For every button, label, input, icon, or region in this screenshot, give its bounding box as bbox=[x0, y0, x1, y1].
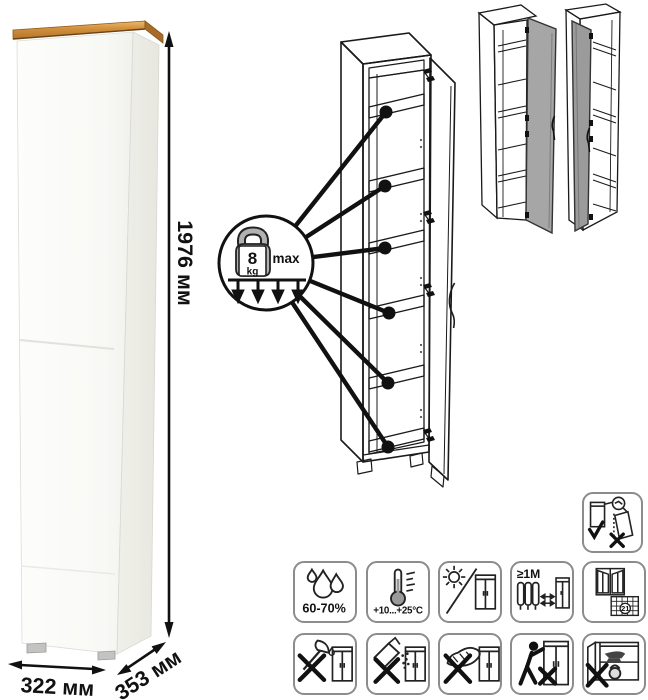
x-mark-icon bbox=[611, 534, 623, 546]
checkmark-icon bbox=[590, 522, 603, 537]
width-dimension: 322 мм bbox=[8, 661, 106, 700]
height-dimension: 1976 мм bbox=[165, 31, 198, 638]
gray-door bbox=[572, 21, 591, 231]
temperature-label: +10...+25°C bbox=[373, 606, 423, 617]
water-drops-icon bbox=[308, 570, 343, 598]
x-mark-icon bbox=[588, 665, 607, 686]
pictogram-sunlight bbox=[438, 561, 502, 623]
product-photo bbox=[13, 21, 163, 660]
carcass-top bbox=[341, 33, 431, 64]
cabinet-foot bbox=[98, 651, 115, 660]
wardrobe-icon bbox=[556, 578, 569, 608]
pictogram-heater-distance: ≥1М bbox=[510, 561, 574, 623]
pictogram-no-abrasive-sponge bbox=[438, 633, 502, 695]
humidity-label: 60-70% bbox=[302, 602, 345, 616]
pictogram-temperature: +10...+25°C bbox=[366, 561, 430, 623]
calendar-day: 21 bbox=[621, 604, 629, 613]
pictogram-no-abrasive-powder bbox=[366, 633, 430, 695]
thermometer-icon bbox=[391, 570, 415, 606]
fastener-detail-magnifier bbox=[613, 497, 625, 509]
shelf-markers bbox=[379, 106, 396, 454]
height-label: 1976 мм bbox=[173, 220, 197, 306]
carcass-front bbox=[363, 55, 431, 462]
width-label: 322 мм bbox=[20, 673, 95, 700]
max-label: max bbox=[272, 251, 300, 266]
weight-unit: kg bbox=[247, 267, 259, 278]
open-window-icon bbox=[596, 569, 624, 595]
wardrobe-icon bbox=[479, 647, 499, 681]
weight-value: 8 bbox=[248, 249, 257, 268]
pictogram-no-sharp-tools bbox=[293, 633, 357, 695]
variant-shelves bbox=[593, 42, 616, 211]
x-mark-icon bbox=[540, 669, 555, 684]
product-sheet: 1976 мм 322 мм 353 мм bbox=[0, 0, 648, 700]
diagonal-line bbox=[447, 569, 477, 614]
door-variant-right-hinge bbox=[479, 5, 556, 233]
variant-shelves bbox=[498, 40, 526, 208]
open-door bbox=[429, 58, 455, 487]
wardrobe-icon bbox=[332, 647, 352, 681]
calendar-icon: 21 bbox=[611, 597, 638, 616]
double-arrow-icon bbox=[541, 594, 554, 605]
shelf-load-badge: 8 kg max bbox=[219, 216, 313, 310]
arrowhead-down bbox=[165, 622, 174, 638]
anvil-icon bbox=[605, 651, 626, 662]
sun-icon bbox=[443, 566, 465, 588]
radiator-icon bbox=[518, 583, 539, 610]
pictogram-ventilation: 21 bbox=[582, 561, 646, 623]
pictogram-humidity: 60-70% bbox=[293, 561, 357, 623]
wardrobe-icon bbox=[476, 575, 496, 609]
person-icon bbox=[520, 649, 542, 684]
door-variant-left-hinge bbox=[566, 4, 620, 231]
arrowhead-left bbox=[8, 661, 22, 670]
arrowhead-right bbox=[92, 666, 106, 675]
pictogram-no-dragging bbox=[510, 633, 574, 695]
person-head bbox=[529, 642, 538, 651]
diagram-foot bbox=[410, 453, 423, 467]
cabinet-foot bbox=[27, 643, 46, 653]
distance-label: ≥1М bbox=[517, 567, 541, 581]
cabinet-front-panel bbox=[17, 32, 133, 654]
exploded-diagram bbox=[341, 33, 455, 487]
kettlebell-icon bbox=[610, 665, 621, 678]
arrowhead-up bbox=[165, 31, 174, 47]
pictogram-anti-tip-wall-mount bbox=[582, 492, 643, 553]
pictogram-no-overload bbox=[582, 633, 646, 695]
